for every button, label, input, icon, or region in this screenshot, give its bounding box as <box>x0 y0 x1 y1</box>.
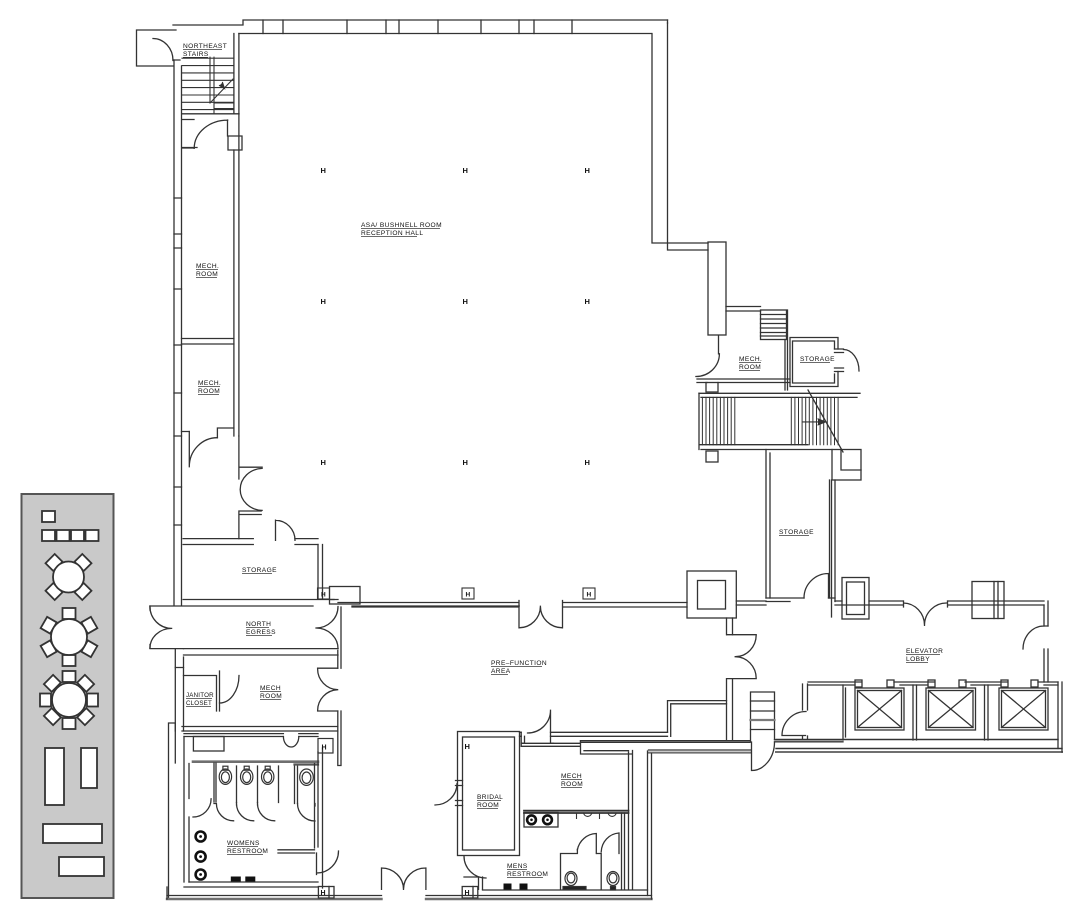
svg-text:H: H <box>585 297 590 306</box>
svg-text:H: H <box>321 297 326 306</box>
svg-text:H: H <box>587 592 592 599</box>
svg-text:H: H <box>322 745 327 752</box>
svg-text:H: H <box>321 592 326 599</box>
svg-text:H: H <box>465 890 470 897</box>
svg-text:H: H <box>465 742 470 751</box>
svg-text:H: H <box>463 297 468 306</box>
svg-text:H: H <box>466 592 471 599</box>
svg-text:H: H <box>585 458 590 467</box>
svg-text:H: H <box>463 166 468 175</box>
svg-text:H: H <box>321 890 326 897</box>
svg-text:H: H <box>321 458 326 467</box>
svg-text:H: H <box>463 458 468 467</box>
svg-text:H: H <box>585 166 590 175</box>
svg-text:H: H <box>321 166 326 175</box>
